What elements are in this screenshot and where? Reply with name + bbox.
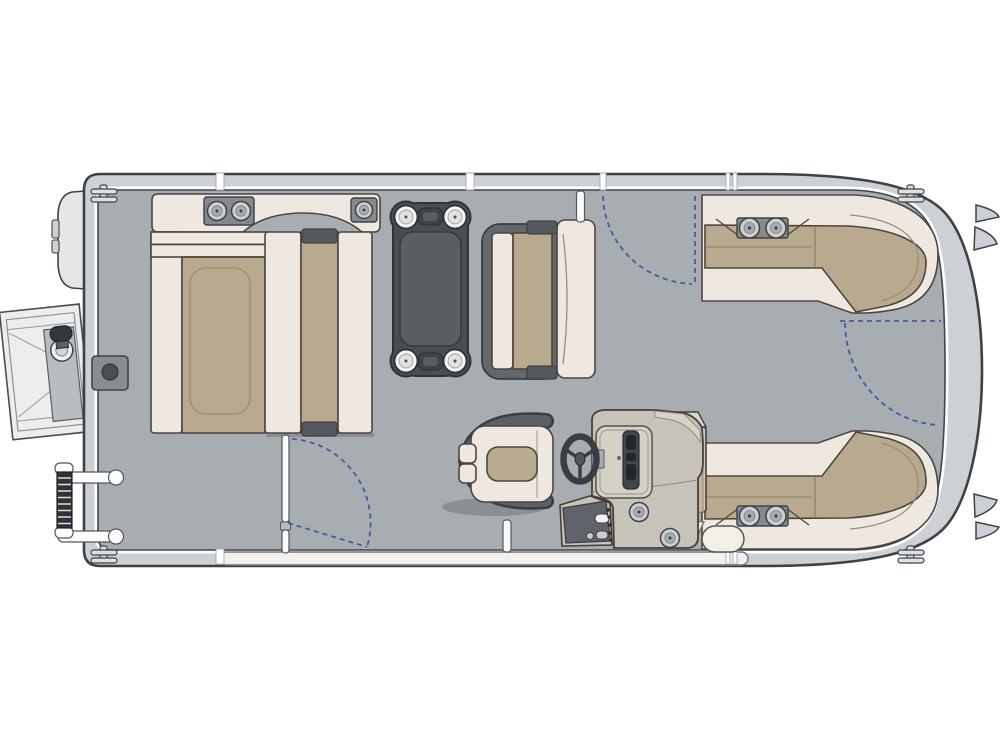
bottom-rub-strip <box>220 552 748 565</box>
flip-bench-front <box>265 232 301 433</box>
bench-front-strip <box>492 233 513 369</box>
seat-top-strip <box>151 232 268 245</box>
stern-swim-platform <box>0 304 92 440</box>
switch-oval <box>596 531 608 539</box>
ladder-body <box>57 472 72 528</box>
mid-bench-seat <box>482 220 595 379</box>
starboard-gate-post <box>577 191 585 222</box>
lounge-end-cap <box>702 526 744 552</box>
ladder-knob-icon <box>49 325 72 342</box>
chair-bolster <box>459 464 476 483</box>
switch-button <box>587 533 594 540</box>
seat-top-strip <box>151 245 268 258</box>
switch-oval <box>595 514 609 523</box>
helm-rail-post <box>503 520 511 552</box>
table-panel <box>400 232 461 346</box>
display-slot <box>626 435 636 450</box>
ignition-dot <box>617 456 621 460</box>
boat-floor-plan <box>0 0 1000 750</box>
flip-bench-back <box>338 232 372 433</box>
bench-backrest <box>557 220 595 378</box>
floor-plan-stage <box>0 0 1000 750</box>
flip-hinge-bracket <box>302 422 337 436</box>
stern-lounge-cushion <box>182 257 265 433</box>
stern-lounge-backrest <box>151 232 182 433</box>
flip-hinge-bracket <box>302 229 337 243</box>
bench-cushion <box>513 233 552 369</box>
utility-box <box>92 356 128 390</box>
starboard-bow-lounge <box>702 195 938 313</box>
display-slot <box>626 453 636 461</box>
chair-cushion <box>487 447 537 481</box>
chair-bolster <box>459 444 476 463</box>
display-slot <box>626 464 636 480</box>
flip-hinge-bracket <box>527 221 557 234</box>
port-gate-panel <box>282 435 289 522</box>
pedestal-table <box>391 202 471 377</box>
flip-hinge-bracket <box>527 366 557 379</box>
flip-bench-cushion <box>301 232 338 433</box>
port-gate-post <box>282 530 289 553</box>
